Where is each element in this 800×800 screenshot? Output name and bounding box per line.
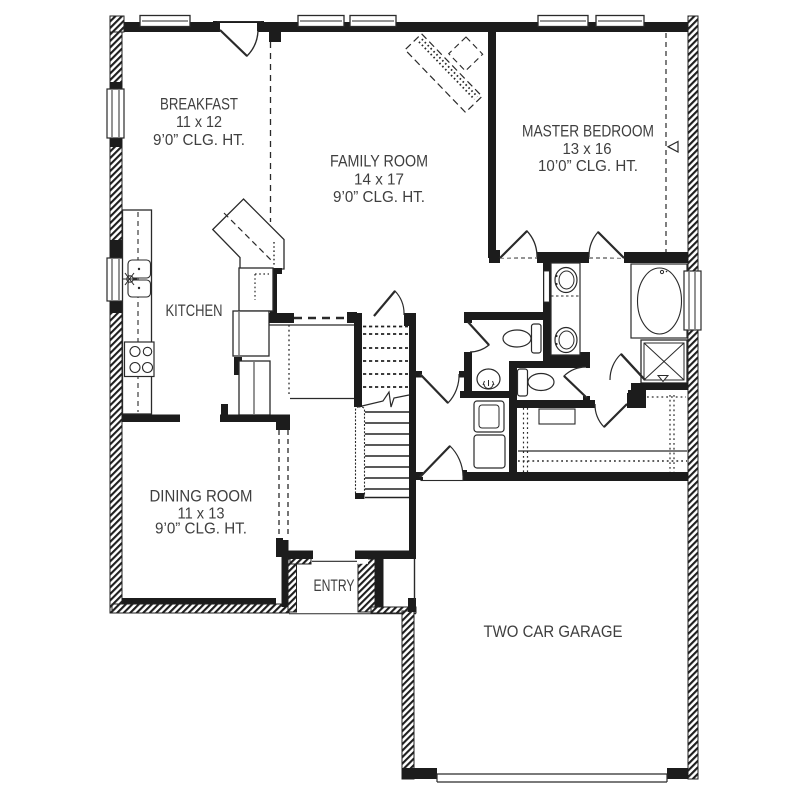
svg-text:ENTRY: ENTRY: [314, 577, 355, 595]
svg-text:FAMILY ROOM: FAMILY ROOM: [330, 153, 428, 171]
svg-text:KITCHEN: KITCHEN: [166, 302, 223, 320]
svg-text:10’0” CLG. HT.: 10’0” CLG. HT.: [538, 158, 638, 175]
svg-text:MASTER BEDROOM: MASTER BEDROOM: [522, 123, 654, 141]
svg-text:BREAKFAST: BREAKFAST: [160, 96, 238, 114]
svg-text:9’0” CLG. HT.: 9’0” CLG. HT.: [155, 521, 247, 538]
svg-text:14 x 17: 14 x 17: [354, 172, 404, 189]
svg-text:TWO CAR GARAGE: TWO CAR GARAGE: [484, 623, 623, 641]
svg-text:DINING ROOM: DINING ROOM: [150, 488, 253, 506]
svg-text:9’0” CLG. HT.: 9’0” CLG. HT.: [153, 132, 245, 149]
svg-text:11 x 12: 11 x 12: [176, 114, 222, 131]
svg-text:13 x 16: 13 x 16: [563, 141, 612, 158]
svg-text:9’0” CLG. HT.: 9’0” CLG. HT.: [333, 189, 425, 206]
